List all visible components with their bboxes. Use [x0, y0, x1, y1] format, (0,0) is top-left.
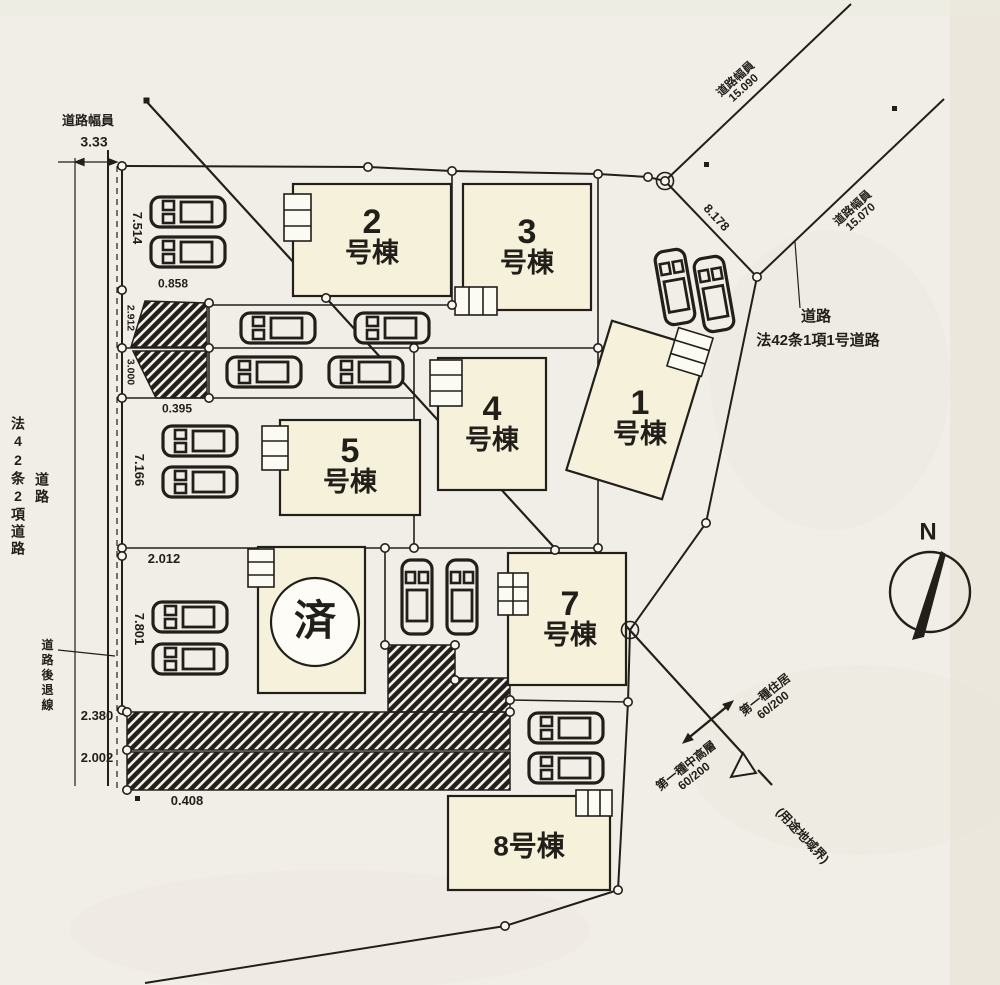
- left-road-width-label: 道路幅員: [62, 114, 114, 128]
- dim-7801: 7.801: [132, 613, 146, 646]
- building-5-number: 5: [323, 434, 377, 468]
- building-4-label: 4 号棟: [465, 392, 519, 454]
- porch-icon: [576, 790, 612, 816]
- building-1-suffix: 号棟: [613, 420, 667, 448]
- dim-0395: 0.395: [162, 403, 192, 416]
- car-icon: [241, 313, 315, 343]
- building-8-label: 8号棟: [493, 831, 565, 860]
- building-1-number: 1: [613, 386, 667, 420]
- left-road-label: 道路: [35, 472, 49, 506]
- setback-line-label: 道路後退線: [41, 639, 53, 714]
- dim-0408: 0.408: [171, 794, 204, 808]
- building-3-number: 3: [500, 215, 554, 249]
- car-icon: [329, 357, 403, 387]
- right-road-label: 道路: [801, 309, 831, 325]
- building-3-suffix: 号棟: [500, 249, 554, 277]
- building-7-label: 7 号棟: [543, 587, 597, 649]
- porch-icon: [455, 287, 497, 315]
- dim-7166: 7.166: [132, 454, 146, 487]
- porch-icon: [262, 426, 288, 470]
- car-icon: [151, 237, 225, 267]
- car-icon: [151, 197, 225, 227]
- right-road-law-label: 法42条1項1号道路: [756, 333, 879, 349]
- car-icon: [447, 560, 477, 634]
- building-2-number: 2: [345, 205, 399, 239]
- sold-label: 済: [294, 599, 336, 643]
- porch-icon: [284, 194, 311, 241]
- car-icon: [163, 426, 237, 456]
- car-icon: [355, 313, 429, 343]
- building-2-label: 2 号棟: [345, 205, 399, 267]
- dim-2002: 2.002: [81, 751, 114, 765]
- building-7-suffix: 号棟: [543, 621, 597, 649]
- dim-0858: 0.858: [158, 278, 188, 291]
- car-icon: [529, 753, 603, 783]
- dim-2380: 2.380: [81, 709, 114, 723]
- building-5-label: 5 号棟: [323, 434, 377, 496]
- car-icon: [153, 644, 227, 674]
- site-plan: 道路幅員 3.33 法42条2項道路 道路 道路後退線 7.514 0.858 …: [0, 0, 1000, 985]
- porch-icon: [498, 573, 528, 615]
- left-road-width-value: 3.33: [80, 135, 107, 150]
- compass-north-label: N: [919, 519, 936, 544]
- porch-icon: [248, 549, 274, 587]
- dim-2912: 2.912: [124, 305, 135, 331]
- dim-3000: 3.000: [124, 359, 135, 385]
- car-icon: [529, 713, 603, 743]
- car-icon: [163, 467, 237, 497]
- car-icon: [153, 602, 227, 632]
- building-1-label: 1 号棟: [613, 386, 667, 448]
- building-7-number: 7: [543, 587, 597, 621]
- building-4-number: 4: [465, 392, 519, 426]
- left-road-law-label: 法42条2項道路: [11, 416, 25, 558]
- car-icon: [654, 248, 696, 326]
- car-icon: [402, 560, 432, 634]
- building-5-suffix: 号棟: [323, 468, 377, 496]
- building-3-label: 3 号棟: [500, 215, 554, 277]
- porch-icon: [430, 360, 462, 406]
- building-4-suffix: 号棟: [465, 426, 519, 454]
- dim-7514: 7.514: [130, 212, 144, 245]
- car-icon: [227, 357, 301, 387]
- building-2-suffix: 号棟: [345, 239, 399, 267]
- car-icon: [693, 255, 735, 333]
- dim-2012: 2.012: [148, 552, 181, 566]
